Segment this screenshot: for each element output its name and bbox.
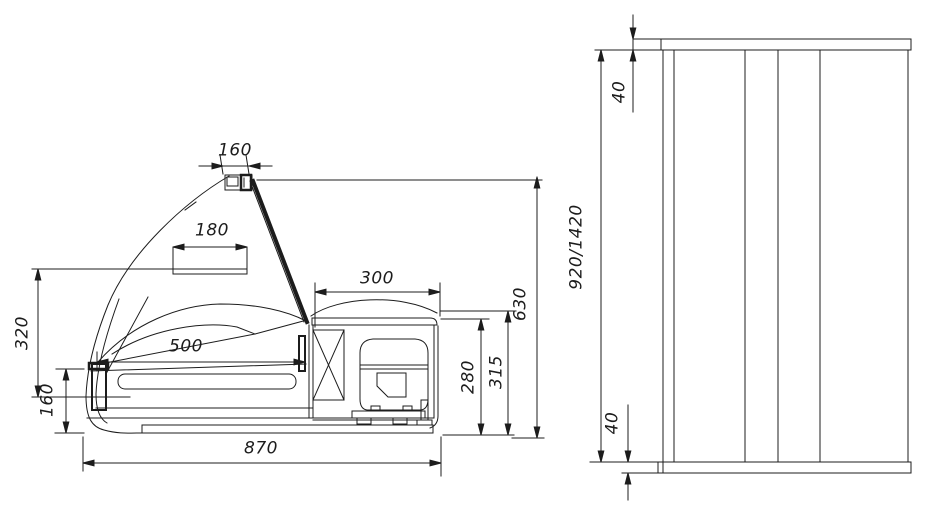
dim-label-lamp-width: 160: [218, 143, 252, 160]
side-view-drawing: [32, 155, 544, 476]
well-shelf: [118, 374, 296, 389]
dim-label-sign-board-width: 180: [195, 223, 229, 240]
lamp-assembly: [225, 175, 252, 190]
dim-label-countertop-thickness: 40: [612, 81, 629, 104]
front-glass-inner-line: [250, 181, 304, 322]
technical-drawing: [0, 0, 927, 514]
dim-label-machine-overall-height: 315: [489, 355, 506, 389]
dimension-lines-side-view: [32, 155, 544, 476]
dim-label-overall-body-height: 630: [513, 287, 530, 321]
dim-label-display-well-width: 500: [169, 339, 203, 356]
dim-label-machine-compartment-width: 300: [360, 271, 394, 288]
countertop-bar: [633, 39, 911, 50]
sign-board: [173, 247, 247, 274]
compressor: [352, 339, 428, 424]
front-glass: [253, 181, 307, 322]
base-platform: [142, 425, 433, 433]
base-bar: [658, 462, 911, 473]
dim-label-base-thickness: 40: [605, 412, 622, 435]
lid-curve: [311, 300, 437, 316]
drawing-canvas: 160 180 300 500 320 160 870 280 315 630 …: [0, 0, 927, 514]
front-post: [89, 363, 108, 410]
machine-compartment: [299, 300, 438, 428]
dim-label-machine-compartment-height: 280: [461, 360, 478, 394]
front-view-drawing: [590, 15, 911, 500]
compartment-right-wall: [430, 325, 438, 428]
body-panel-lines: [663, 50, 908, 462]
lid-plate: [312, 318, 437, 325]
dim-label-body-height-options: 920/1420: [569, 204, 586, 289]
dim-label-canopy-height: 320: [15, 316, 32, 350]
compartment-left-wall: [309, 325, 313, 418]
condenser-unit: [313, 330, 344, 400]
divider-bar: [299, 336, 305, 371]
dim-label-front-panel-height: 160: [40, 383, 57, 417]
dim-label-overall-depth: 870: [244, 441, 278, 458]
